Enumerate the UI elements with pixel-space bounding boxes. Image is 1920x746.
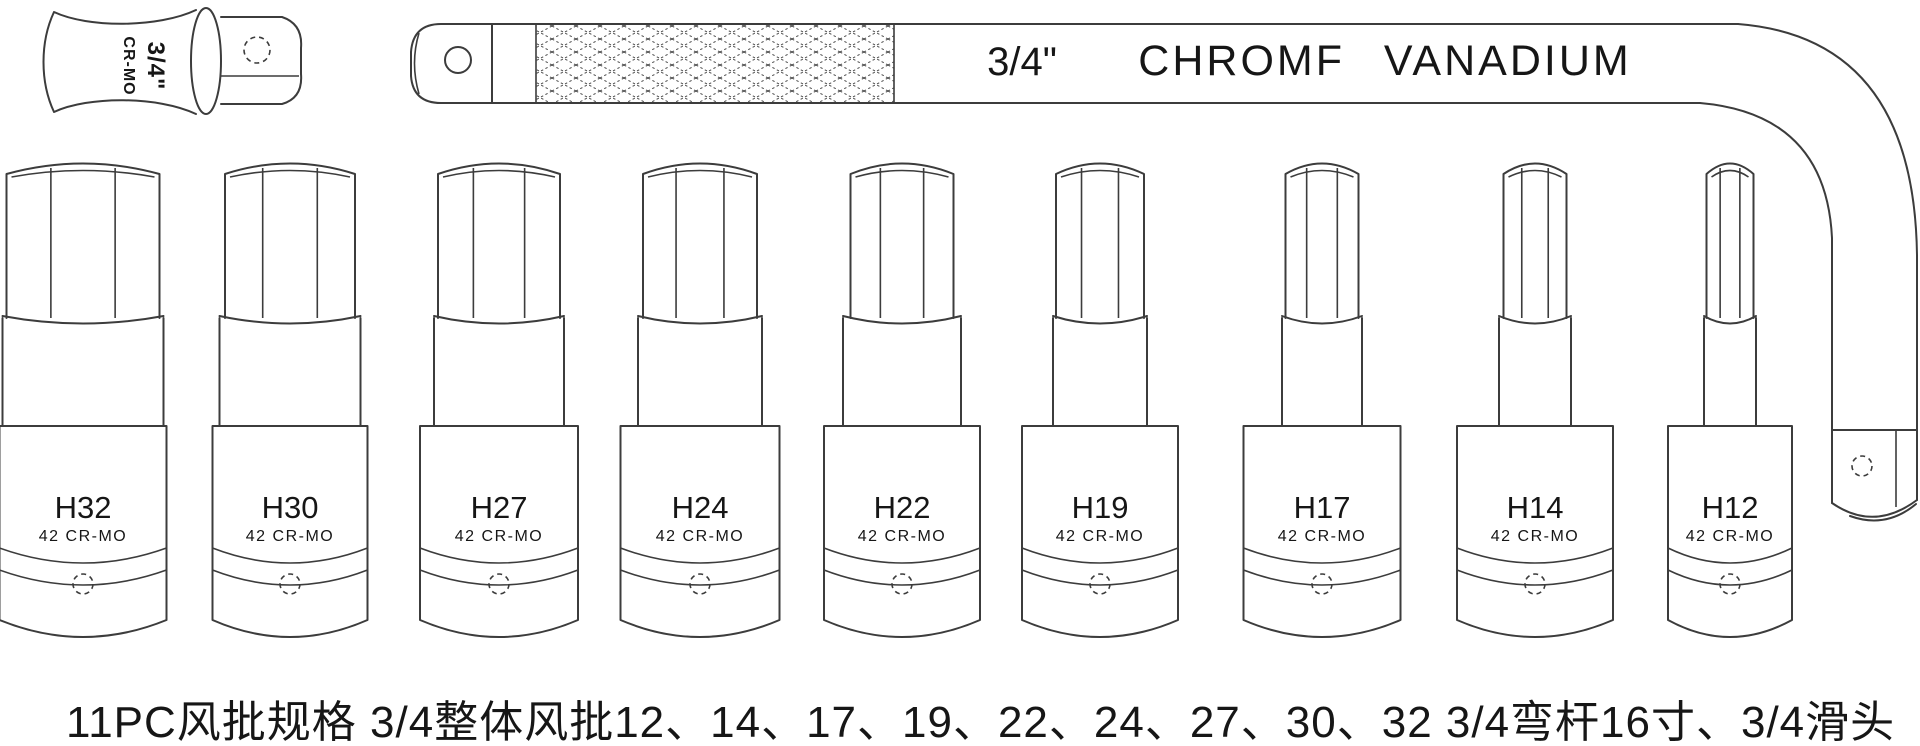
socket-material-label: 42 CR-MO bbox=[1491, 528, 1579, 545]
caption-text: 11PC风批规格 3/4整体风批12、14、17、19、22、24、27、30、… bbox=[66, 698, 1895, 746]
socket-shank-sides bbox=[434, 318, 564, 426]
socket-hex-facet-lines bbox=[1720, 168, 1740, 318]
socket-drawing: H3042 CR-MO bbox=[213, 164, 368, 638]
socket-size-label: H14 bbox=[1507, 490, 1564, 525]
slide-head-drawing: 3/4" CR-MO bbox=[44, 8, 302, 114]
socket-hex-facet-lines bbox=[1307, 168, 1338, 318]
socket-size-label: H32 bbox=[55, 490, 112, 525]
bar-square-drive-bottom bbox=[1832, 500, 1917, 520]
socket-hex-bit-outline bbox=[438, 164, 560, 319]
socket-hex-top-face bbox=[1061, 171, 1139, 178]
socket-shank-sides bbox=[1282, 318, 1362, 426]
socket-groove-band bbox=[0, 548, 167, 585]
socket-hex-facet-lines bbox=[880, 168, 923, 318]
bar-size-label: 3/4" bbox=[987, 40, 1057, 84]
slide-head-square-drive bbox=[221, 17, 301, 104]
socket-drawing: H2242 CR-MO bbox=[824, 164, 980, 638]
socket-groove-band bbox=[213, 548, 368, 585]
socket-size-label: H22 bbox=[874, 490, 931, 525]
socket-shank-sides bbox=[1704, 318, 1756, 426]
socket-hex-top-face bbox=[1712, 171, 1749, 178]
socket-hex-bit-outline bbox=[1707, 164, 1754, 319]
socket-material-label: 42 CR-MO bbox=[246, 528, 334, 545]
socket-set: H3242 CR-MOH3042 CR-MOH2742 CR-MOH2442 C… bbox=[0, 164, 1792, 638]
socket-size-label: H27 bbox=[471, 490, 528, 525]
socket-hex-facet-lines bbox=[1082, 168, 1119, 318]
socket-hex-top-face bbox=[230, 171, 350, 178]
socket-shank-top-arc bbox=[1704, 316, 1756, 324]
breaker-bar-drawing: 3/4" CHROMF VANADIUM bbox=[411, 24, 1917, 520]
socket-pin-hole-icon bbox=[1525, 574, 1545, 594]
bar-pin-hole-icon bbox=[1852, 456, 1872, 476]
socket-hex-bit-outline bbox=[7, 164, 160, 319]
slide-head-face-ellipse bbox=[191, 8, 221, 114]
socket-shank-sides bbox=[1499, 318, 1571, 426]
socket-shank-sides bbox=[220, 318, 361, 426]
technical-drawing-page: 3/4" CR-MO 3/4" CHROMF VANADIUM bbox=[0, 0, 1920, 746]
socket-size-label: H30 bbox=[262, 490, 319, 525]
socket-groove-band bbox=[824, 548, 980, 585]
bar-left-cap-fold bbox=[415, 33, 420, 94]
slide-head-pin-hole-icon bbox=[244, 37, 270, 63]
socket-hex-bit-outline bbox=[1286, 164, 1359, 319]
socket-hex-top-face bbox=[856, 171, 949, 178]
socket-shank-top-arc bbox=[3, 316, 164, 324]
socket-pin-hole-icon bbox=[1312, 574, 1332, 594]
socket-size-label: H24 bbox=[672, 490, 729, 525]
socket-shank-top-arc bbox=[220, 316, 361, 324]
socket-material-label: 42 CR-MO bbox=[656, 528, 744, 545]
socket-hex-top-face bbox=[12, 171, 155, 178]
socket-shank-top-arc bbox=[1282, 316, 1362, 324]
socket-drawing: H2442 CR-MO bbox=[621, 164, 780, 638]
socket-groove-band bbox=[621, 548, 780, 585]
socket-hex-bit-outline bbox=[851, 164, 954, 319]
socket-groove-band bbox=[1457, 548, 1613, 585]
knurl-grip-texture bbox=[536, 25, 894, 102]
socket-pin-hole-icon bbox=[1090, 574, 1110, 594]
socket-groove-band bbox=[1022, 548, 1178, 585]
socket-hex-facet-lines bbox=[473, 168, 524, 318]
socket-pin-hole-icon bbox=[73, 574, 93, 594]
socket-shank-top-arc bbox=[1499, 316, 1571, 324]
socket-drawing: H3242 CR-MO bbox=[0, 164, 167, 638]
socket-hex-top-face bbox=[1291, 171, 1354, 178]
socket-hex-facet-lines bbox=[1522, 168, 1548, 318]
socket-size-label: H19 bbox=[1072, 490, 1129, 525]
socket-groove-band bbox=[420, 548, 578, 585]
socket-shank-top-arc bbox=[1053, 316, 1147, 324]
socket-shank-sides bbox=[638, 318, 762, 426]
socket-material-label: 42 CR-MO bbox=[39, 528, 127, 545]
bar-bend-outer-edge bbox=[1738, 24, 1917, 430]
socket-material-label: 42 CR-MO bbox=[1056, 528, 1144, 545]
socket-material-label: 42 CR-MO bbox=[858, 528, 946, 545]
socket-drawing: H1942 CR-MO bbox=[1022, 164, 1178, 638]
socket-pin-hole-icon bbox=[1720, 574, 1740, 594]
socket-hex-top-face bbox=[443, 171, 555, 178]
socket-hex-facet-lines bbox=[263, 168, 318, 318]
socket-pin-hole-icon bbox=[892, 574, 912, 594]
socket-hex-top-face bbox=[1509, 171, 1562, 178]
socket-hex-bit-outline bbox=[1056, 164, 1144, 319]
slide-head-body-outline bbox=[44, 10, 197, 114]
socket-size-label: H17 bbox=[1294, 490, 1351, 525]
bar-left-cap bbox=[411, 24, 492, 103]
socket-material-label: 42 CR-MO bbox=[1278, 528, 1366, 545]
socket-hex-bit-outline bbox=[1504, 164, 1567, 319]
socket-shank-sides bbox=[843, 318, 961, 426]
socket-hex-bit-outline bbox=[643, 164, 757, 319]
slide-head-size-label: 3/4" bbox=[142, 42, 169, 91]
socket-hex-facet-lines bbox=[51, 168, 115, 318]
socket-shank-sides bbox=[1053, 318, 1147, 426]
socket-material-label: 42 CR-MO bbox=[455, 528, 543, 545]
bar-hang-hole-icon bbox=[445, 47, 471, 73]
socket-groove-band bbox=[1668, 548, 1792, 585]
bar-square-drive-end bbox=[1832, 430, 1917, 503]
socket-drawing: H1442 CR-MO bbox=[1457, 164, 1613, 638]
socket-drawing: H1742 CR-MO bbox=[1244, 164, 1401, 638]
socket-shank-top-arc bbox=[434, 316, 564, 324]
drawing-canvas: 3/4" CR-MO 3/4" CHROMF VANADIUM bbox=[0, 0, 1920, 746]
socket-pin-hole-icon bbox=[489, 574, 509, 594]
socket-drawing: H2742 CR-MO bbox=[420, 164, 578, 638]
bar-material-label: CHROMF VANADIUM bbox=[1138, 37, 1631, 85]
slide-head-material-label: CR-MO bbox=[120, 36, 137, 95]
socket-drawing: H1242 CR-MO bbox=[1668, 164, 1792, 638]
socket-pin-hole-icon bbox=[690, 574, 710, 594]
socket-shank-top-arc bbox=[843, 316, 961, 324]
socket-material-label: 42 CR-MO bbox=[1686, 528, 1774, 545]
socket-shank-sides bbox=[3, 318, 164, 426]
socket-size-label: H12 bbox=[1702, 490, 1759, 525]
socket-groove-band bbox=[1244, 548, 1401, 585]
socket-hex-top-face bbox=[648, 171, 752, 178]
socket-pin-hole-icon bbox=[280, 574, 300, 594]
socket-hex-bit-outline bbox=[225, 164, 355, 319]
socket-hex-facet-lines bbox=[676, 168, 724, 318]
socket-shank-top-arc bbox=[638, 316, 762, 324]
